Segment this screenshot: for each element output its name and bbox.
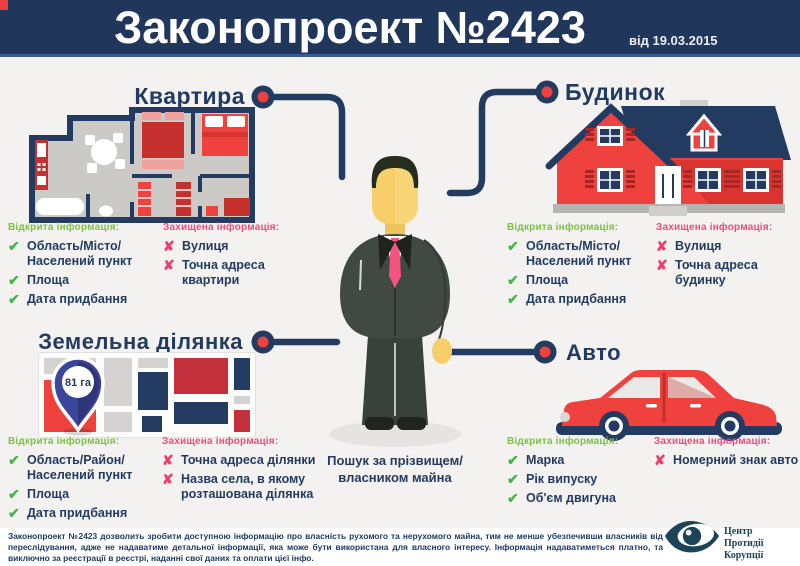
house-open-info: Відкрита інформація: ✔Область/Місто/ Нас… — [507, 222, 657, 311]
list-item: ✔Область/Місто/ Населений пункт — [8, 239, 158, 269]
protected-info-heading: Захищена інформація: — [656, 222, 798, 233]
auto-protected-info: Захищена інформація: ✘Номерний знак авто — [654, 436, 799, 472]
list-item: ✘Вулиця — [656, 239, 798, 254]
house-protected-info: Захищена інформація: ✘Вулиця ✘Точна адре… — [656, 222, 798, 292]
check-icon: ✔ — [507, 453, 521, 467]
protected-info-heading: Захищена інформація: — [163, 222, 315, 233]
cross-icon: ✘ — [162, 472, 176, 486]
check-icon: ✔ — [8, 487, 22, 501]
cross-icon: ✘ — [656, 239, 670, 253]
cross-icon: ✘ — [163, 239, 177, 253]
footer-disclaimer: Законопроект №2423 дозволить зробити дос… — [8, 531, 663, 564]
cross-icon: ✘ — [162, 453, 176, 467]
check-icon: ✔ — [507, 239, 521, 253]
car-illustration — [548, 360, 788, 446]
check-icon: ✔ — [8, 273, 22, 287]
list-item: ✘Вулиця — [163, 239, 315, 254]
check-icon: ✔ — [507, 292, 521, 306]
check-icon: ✔ — [8, 292, 22, 306]
map-pin-label: 81 га — [65, 377, 92, 389]
list-item: ✔Область/Район/ Населений пункт — [8, 453, 158, 483]
land-open-info: Відкрита інформація: ✔Область/Район/ Нас… — [8, 436, 158, 525]
header: Законопроект №2423 від 19.03.2015 — [0, 0, 800, 57]
list-item: ✘Назва села, в якому розташована ділянка — [162, 472, 320, 502]
list-item: ✔Марка — [507, 453, 657, 468]
check-icon: ✔ — [8, 453, 22, 467]
check-icon: ✔ — [8, 506, 22, 520]
list-item: ✘Номерний знак авто — [654, 453, 799, 468]
organization-logo: Центр Протидії Корупції — [664, 516, 796, 564]
protected-info-heading: Захищена інформація: — [162, 436, 320, 447]
apartment-floorplan-illustration — [28, 106, 256, 224]
protected-info-heading: Захищена інформація: — [654, 436, 799, 447]
land-protected-info: Захищена інформація: ✘Точна адреса ділян… — [162, 436, 320, 506]
list-item: ✔Дата придбання — [8, 292, 158, 307]
apartment-open-info: Відкрита інформація: ✔Область/Місто/ Нас… — [8, 222, 158, 311]
list-item: ✘Точна адреса квартири — [163, 258, 315, 288]
open-info-heading: Відкрита інформація: — [507, 436, 657, 447]
apartment-protected-info: Захищена інформація: ✘Вулиця ✘Точна адре… — [163, 222, 315, 292]
list-item: ✔Площа — [8, 273, 158, 288]
land-map-illustration: 81 га — [38, 352, 256, 438]
auto-open-info: Відкрита інформація: ✔Марка ✔Рік випуску… — [507, 436, 657, 510]
open-info-heading: Відкрита інформація: — [8, 222, 158, 233]
list-item: ✔Дата придбання — [8, 506, 158, 521]
logo-text: Центр Протидії Корупції — [724, 526, 796, 562]
search-caption: Пошук за прізвищем/ власником майна — [310, 452, 480, 486]
check-icon: ✔ — [507, 472, 521, 486]
cross-icon: ✘ — [656, 258, 670, 272]
check-icon: ✔ — [8, 239, 22, 253]
page-title: Законопроект №2423 — [70, 0, 630, 54]
list-item: ✔Площа — [8, 487, 158, 502]
person-illustration — [320, 148, 470, 448]
list-item: ✔Об'єм двигуна — [507, 491, 657, 506]
check-icon: ✔ — [507, 273, 521, 287]
corner-mark — [0, 0, 8, 10]
header-date: від 19.03.2015 — [629, 33, 718, 48]
cross-icon: ✘ — [163, 258, 177, 272]
open-info-heading: Відкрита інформація: — [507, 222, 657, 233]
infographic-root: Законопроект №2423 від 19.03.2015 Кварти… — [0, 0, 800, 566]
list-item: ✔Область/Місто/ Населений пункт — [507, 239, 657, 269]
list-item: ✘Точна адреса будинку — [656, 258, 798, 288]
cross-icon: ✘ — [654, 453, 668, 467]
list-item: ✘Точна адреса ділянки — [162, 453, 320, 468]
list-item: ✔Дата придбання — [507, 292, 657, 307]
eye-icon — [664, 516, 720, 556]
check-icon: ✔ — [507, 491, 521, 505]
list-item: ✔Площа — [507, 273, 657, 288]
list-item: ✔Рік випуску — [507, 472, 657, 487]
footer: Законопроект №2423 дозволить зробити дос… — [0, 528, 800, 566]
house-illustration — [543, 100, 793, 222]
open-info-heading: Відкрита інформація: — [8, 436, 158, 447]
